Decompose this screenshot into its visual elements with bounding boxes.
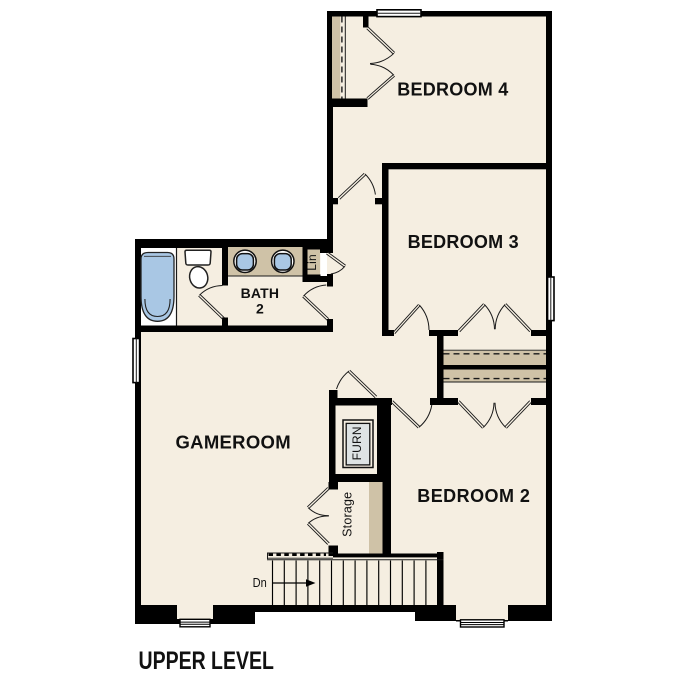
svg-text:Dn: Dn bbox=[253, 575, 267, 590]
svg-text:UPPER LEVEL: UPPER LEVEL bbox=[139, 647, 274, 675]
svg-text:GAMEROOM: GAMEROOM bbox=[175, 431, 290, 452]
svg-text:2: 2 bbox=[256, 301, 264, 317]
svg-text:BATH: BATH bbox=[241, 285, 280, 301]
svg-text:BEDROOM 4: BEDROOM 4 bbox=[397, 79, 508, 99]
svg-text:Lin: Lin bbox=[305, 254, 319, 271]
svg-text:BEDROOM 2: BEDROOM 2 bbox=[417, 486, 530, 506]
svg-text:BEDROOM 3: BEDROOM 3 bbox=[408, 232, 519, 252]
svg-text:Storage: Storage bbox=[340, 492, 354, 537]
svg-text:FURN: FURN bbox=[350, 426, 364, 460]
